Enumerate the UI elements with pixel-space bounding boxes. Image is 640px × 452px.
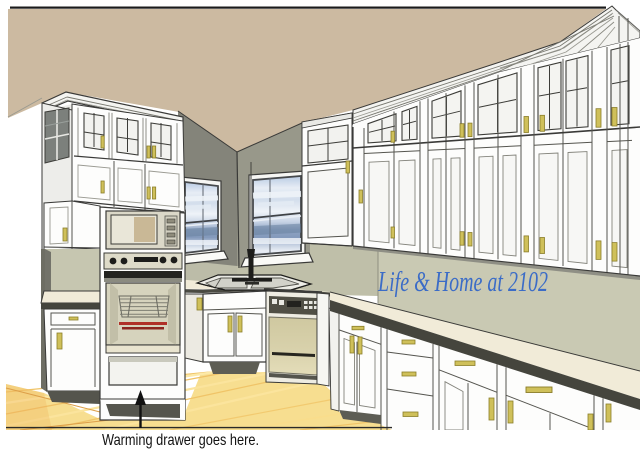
svg-text:Life & Home at 2102: Life & Home at 2102 — [377, 266, 548, 298]
svg-text:Warming drawer goes here.: Warming drawer goes here. — [102, 432, 259, 449]
